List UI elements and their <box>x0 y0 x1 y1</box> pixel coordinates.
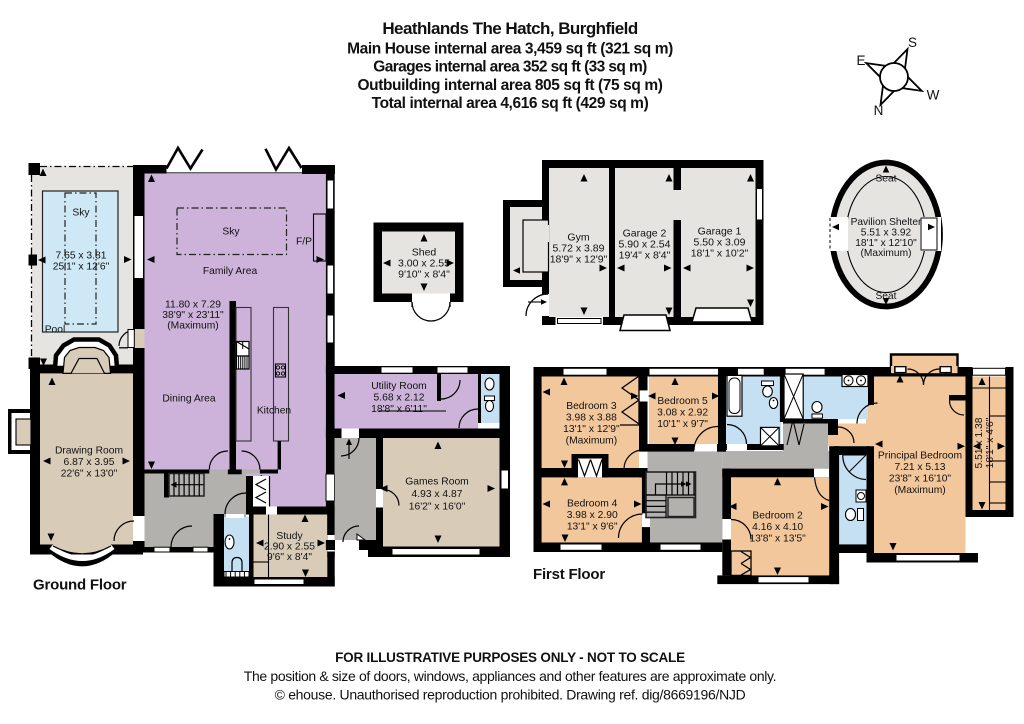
svg-text:9'6" x 8'4": 9'6" x 8'4" <box>267 552 312 563</box>
svg-text:Kitchen: Kitchen <box>257 406 292 417</box>
svg-text:S: S <box>908 35 917 50</box>
svg-text:Ground Floor: Ground Floor <box>33 577 127 594</box>
svg-text:7.21 x 5.13: 7.21 x 5.13 <box>895 462 946 473</box>
svg-text:N: N <box>874 103 884 118</box>
svg-text:Drawing Room: Drawing Room <box>55 446 123 457</box>
svg-text:Games Room: Games Room <box>405 477 469 488</box>
svg-text:18'1" x 10'2": 18'1" x 10'2" <box>691 248 749 260</box>
svg-text:16'2" x 16'0": 16'2" x 16'0" <box>409 502 466 513</box>
svg-text:4.93 x 4.87: 4.93 x 4.87 <box>412 489 463 500</box>
svg-text:18'9" x 12'9": 18'9" x 12'9" <box>550 254 608 266</box>
svg-text:FOR ILLUSTRATIVE PURPOSES ONLY: FOR ILLUSTRATIVE PURPOSES ONLY - NOT TO … <box>335 650 685 665</box>
svg-text:Study: Study <box>276 531 303 542</box>
svg-text:3.98 x 2.90: 3.98 x 2.90 <box>567 510 618 521</box>
svg-text:Dining Area: Dining Area <box>162 394 216 405</box>
svg-text:The position & size of doors,: The position & size of doors, windows, a… <box>244 668 776 684</box>
svg-text:E: E <box>856 53 865 68</box>
svg-text:19'4" x 8'4": 19'4" x 8'4" <box>619 250 671 262</box>
svg-text:Sky: Sky <box>222 227 240 238</box>
svg-text:Heathlands The Hatch, Burghfie: Heathlands The Hatch, Burghfield <box>382 19 638 38</box>
svg-text:7.65 x 3.81: 7.65 x 3.81 <box>56 251 107 262</box>
svg-text:Family Area: Family Area <box>203 266 258 277</box>
svg-text:5.51 x 1.38: 5.51 x 1.38 <box>974 417 985 468</box>
svg-text:Outbuilding internal area 805: Outbuilding internal area 805 sq ft (75 … <box>358 77 663 94</box>
svg-text:Sky: Sky <box>72 208 90 219</box>
svg-text:4.16 x 4.10: 4.16 x 4.10 <box>752 522 803 533</box>
svg-text:Pool: Pool <box>45 325 66 336</box>
svg-text:F/P: F/P <box>296 237 312 248</box>
svg-text:13'1" x 12'9": 13'1" x 12'9" <box>563 424 620 435</box>
svg-text:13'1" x 9'6": 13'1" x 9'6" <box>567 521 618 532</box>
svg-text:Bedroom 5: Bedroom 5 <box>657 396 708 407</box>
svg-text:10'1" x 9'7": 10'1" x 9'7" <box>657 419 708 430</box>
svg-text:23'8" x 16'10": 23'8" x 16'10" <box>889 474 952 485</box>
svg-text:Utility Room: Utility Room <box>371 381 427 392</box>
svg-text:3.08 x 2.92: 3.08 x 2.92 <box>657 408 708 419</box>
svg-text:9'10" x 8'4": 9'10" x 8'4" <box>398 269 450 281</box>
svg-text:18'1" x 4'6": 18'1" x 4'6" <box>985 417 996 468</box>
svg-text:Bedroom 4: Bedroom 4 <box>567 498 618 509</box>
svg-text:25'1" x 12'6": 25'1" x 12'6" <box>53 262 110 273</box>
svg-text:6.87 x 3.95: 6.87 x 3.95 <box>64 457 115 468</box>
svg-text:(Maximum): (Maximum) <box>566 436 617 447</box>
svg-text:(Maximum): (Maximum) <box>894 485 945 496</box>
svg-text:Garages internal area 352 sq f: Garages internal area 352 sq ft (33 sq m… <box>373 59 647 76</box>
svg-text:Pavilion Shelter: Pavilion Shelter <box>851 217 922 228</box>
svg-text:First Floor: First Floor <box>533 566 605 583</box>
svg-text:Total internal area 4,616 sq f: Total internal area 4,616 sq ft (429 sq … <box>372 95 649 112</box>
svg-text:(Maximum): (Maximum) <box>861 248 912 259</box>
svg-text:38'9" x 23'11": 38'9" x 23'11" <box>162 310 224 321</box>
svg-text:Bedroom 2: Bedroom 2 <box>752 511 803 522</box>
svg-text:11.80 x 7.29: 11.80 x 7.29 <box>165 300 221 311</box>
svg-text:18'8" x 6'11": 18'8" x 6'11" <box>371 404 427 415</box>
svg-text:W: W <box>927 88 940 103</box>
svg-text:5.68 x 2.12: 5.68 x 2.12 <box>374 393 425 404</box>
svg-text:2.90 x 2.55: 2.90 x 2.55 <box>264 542 315 553</box>
svg-text:Main House internal area 3,459: Main House internal area 3,459 sq ft (32… <box>347 41 673 58</box>
svg-text:13'8" x 13'5": 13'8" x 13'5" <box>749 534 806 545</box>
svg-text:3.98 x 3.88: 3.98 x 3.88 <box>566 413 617 424</box>
svg-text:22'6" x 13'0": 22'6" x 13'0" <box>61 469 118 480</box>
svg-text:© ehouse. Unauthorised reprodu: © ehouse. Unauthorised reproduction proh… <box>275 687 746 703</box>
svg-text:Principal Bedroom: Principal Bedroom <box>878 451 962 462</box>
svg-text:(Maximum): (Maximum) <box>167 321 218 332</box>
svg-text:Seat: Seat <box>876 174 897 185</box>
svg-text:Bedroom 3: Bedroom 3 <box>566 401 617 412</box>
